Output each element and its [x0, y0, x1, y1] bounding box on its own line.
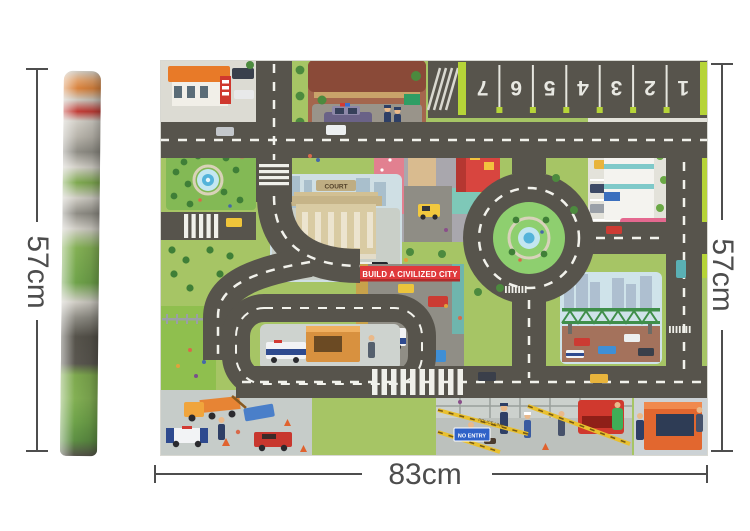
dim-tick — [26, 450, 48, 452]
svg-text:3: 3 — [611, 76, 623, 99]
svg-text:2: 2 — [644, 76, 656, 99]
dim-line — [721, 65, 723, 220]
city-banner: BUILD A CIVILIZED CITY — [360, 266, 460, 282]
accident-scene — [160, 390, 312, 456]
svg-text:4: 4 — [577, 76, 589, 99]
banner-text: BUILD A CIVILIZED CITY — [362, 270, 458, 279]
flat-mat: COURT — [160, 60, 708, 456]
svg-text:1: 1 — [677, 76, 689, 99]
dim-line — [36, 320, 38, 450]
width-label-bottom: 83cm — [388, 458, 461, 492]
no-entry-sign: NO ENTRY — [454, 428, 490, 441]
dim-line — [492, 473, 706, 475]
city-playmat-print: COURT — [160, 60, 708, 456]
dim-line — [36, 70, 38, 222]
svg-text:6: 6 — [510, 76, 522, 99]
dim-tick — [711, 450, 733, 452]
product-photo: 57cm — [0, 0, 750, 531]
svg-text:5: 5 — [543, 76, 555, 99]
rolled-mat — [60, 71, 101, 456]
dim-line — [721, 330, 723, 450]
height-label-left: 57cm — [20, 235, 54, 308]
crime-scene: POLICE LINE NO ENTRY — [436, 396, 632, 456]
height-label-right: 57cm — [705, 238, 739, 311]
shop-robbery-scene — [634, 396, 708, 456]
dim-line — [156, 473, 362, 475]
highway-bridge-scene — [560, 272, 662, 364]
court-sign: COURT — [324, 184, 347, 191]
left-cross-road — [160, 212, 256, 240]
dim-tick — [706, 465, 708, 483]
svg-text:NO ENTRY: NO ENTRY — [458, 434, 487, 440]
svg-text:7: 7 — [477, 76, 489, 99]
roundabout-park — [493, 202, 565, 274]
kiosk-scene — [260, 324, 400, 370]
